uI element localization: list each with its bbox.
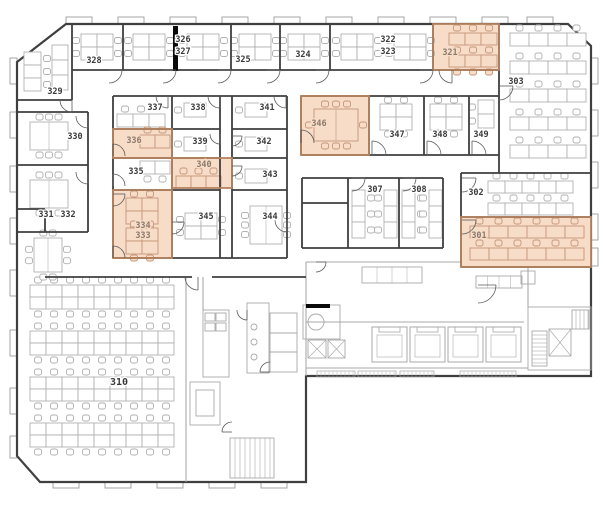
desk <box>505 181 522 193</box>
chair <box>36 152 43 158</box>
chair <box>236 141 243 147</box>
room-label-346: 346 <box>311 119 326 129</box>
desk <box>158 389 174 401</box>
desk <box>529 89 548 102</box>
desk <box>384 206 397 222</box>
room-label-331: 331 <box>38 210 53 220</box>
desk <box>158 297 174 309</box>
desk <box>565 226 584 238</box>
desk <box>62 389 78 401</box>
chair <box>535 81 542 87</box>
desk <box>78 435 94 447</box>
desk <box>126 285 142 297</box>
desk <box>510 145 529 158</box>
chair <box>147 403 154 409</box>
chair <box>99 369 106 375</box>
chair <box>236 173 243 179</box>
desk <box>62 343 78 355</box>
chair <box>51 449 58 455</box>
desk <box>546 248 565 260</box>
chair <box>35 403 42 409</box>
chair <box>73 51 80 57</box>
chair <box>573 137 580 143</box>
chair <box>115 449 122 455</box>
desk <box>394 47 410 60</box>
desk <box>203 47 219 60</box>
room-label-330: 330 <box>67 132 82 142</box>
desk <box>396 117 412 130</box>
room-label-348: 348 <box>432 130 447 140</box>
desk <box>126 389 142 401</box>
chair <box>242 232 249 238</box>
chair <box>67 403 74 409</box>
chair <box>573 109 580 115</box>
chair <box>147 357 154 363</box>
desk <box>548 89 567 102</box>
chair <box>67 369 74 375</box>
chair <box>333 101 340 107</box>
room-label-329: 329 <box>47 87 62 97</box>
desk <box>52 45 68 60</box>
chair <box>67 323 74 329</box>
desk <box>446 104 462 117</box>
room-label-326: 326 <box>175 35 190 45</box>
desk <box>155 161 170 174</box>
desk <box>357 34 373 47</box>
desk <box>548 117 567 130</box>
desk <box>46 435 62 447</box>
desk <box>62 331 78 343</box>
desk <box>52 60 68 75</box>
chair <box>420 227 427 233</box>
chair <box>131 449 138 455</box>
chair <box>131 357 138 363</box>
desk <box>126 241 142 254</box>
room-label-302: 302 <box>468 188 483 198</box>
desk <box>30 435 46 447</box>
desk <box>133 34 149 47</box>
desk <box>94 435 110 447</box>
desk <box>567 145 586 158</box>
chair <box>44 56 51 62</box>
desk <box>402 222 415 238</box>
chair <box>163 357 170 363</box>
chair <box>360 122 367 128</box>
desk <box>24 65 41 78</box>
desk <box>352 190 365 206</box>
chair <box>147 191 154 197</box>
chair <box>46 114 53 120</box>
room-label-325: 325 <box>235 55 250 65</box>
chair <box>35 415 42 421</box>
chair <box>64 258 71 264</box>
chair <box>333 38 340 44</box>
chair <box>435 97 442 103</box>
chair <box>67 357 74 363</box>
chair <box>26 246 33 252</box>
chair <box>221 51 228 57</box>
desk <box>126 331 142 343</box>
desk <box>94 343 110 355</box>
chair <box>454 25 461 31</box>
desk <box>203 34 219 47</box>
chair <box>125 38 132 44</box>
desk <box>78 285 94 297</box>
chair <box>163 403 170 409</box>
chair <box>516 137 523 143</box>
desk <box>430 117 446 130</box>
room-label-335: 335 <box>128 167 143 177</box>
chair <box>163 449 170 455</box>
chair <box>573 53 580 59</box>
chair <box>131 191 138 197</box>
chair <box>368 211 375 217</box>
desk <box>81 34 97 47</box>
desk <box>446 117 462 130</box>
chair <box>36 114 43 120</box>
chair <box>99 449 106 455</box>
desk <box>384 190 397 206</box>
chair <box>552 240 559 246</box>
chair <box>99 323 106 329</box>
chair <box>83 323 90 329</box>
desk <box>357 47 373 60</box>
chair <box>516 25 523 31</box>
desk <box>429 222 442 238</box>
chair <box>236 107 243 113</box>
desk <box>410 34 426 47</box>
desk <box>62 297 78 309</box>
desk <box>78 297 94 309</box>
desk <box>201 226 217 239</box>
chair <box>571 240 578 246</box>
chair <box>167 38 174 44</box>
chair <box>322 38 329 44</box>
chair <box>99 415 106 421</box>
chair <box>144 176 151 182</box>
chair <box>99 403 106 409</box>
room-label-301: 301 <box>471 231 486 241</box>
desk <box>110 331 126 343</box>
desk <box>30 423 46 435</box>
desk <box>429 206 442 222</box>
room-label-310: 310 <box>110 377 128 388</box>
desk <box>529 117 548 130</box>
chair <box>554 53 561 59</box>
chair <box>83 311 90 317</box>
chair <box>375 211 382 217</box>
chair <box>122 106 129 112</box>
chair <box>322 143 329 149</box>
desk <box>384 222 397 238</box>
desk <box>142 377 158 389</box>
desk <box>158 435 174 447</box>
chair <box>46 172 53 178</box>
desk <box>126 435 142 447</box>
room-label-327: 327 <box>175 47 190 57</box>
desk <box>110 389 126 401</box>
chair <box>35 369 42 375</box>
chair <box>51 357 58 363</box>
desk <box>46 389 62 401</box>
desk <box>133 47 149 60</box>
desk <box>508 226 527 238</box>
desk <box>133 114 149 127</box>
chair <box>322 101 329 107</box>
desk <box>142 331 158 343</box>
chair <box>35 311 42 317</box>
chair <box>131 415 138 421</box>
room-label-321: 321 <box>442 48 457 58</box>
desk <box>380 104 396 117</box>
chair <box>175 107 182 113</box>
desk <box>206 176 221 188</box>
desk <box>465 33 481 45</box>
desk <box>110 343 126 355</box>
chair <box>36 172 43 178</box>
chair <box>552 218 559 224</box>
room-label-334: 334 <box>135 221 150 231</box>
chair <box>375 195 382 201</box>
desk <box>489 248 508 260</box>
chair <box>83 357 90 363</box>
chair <box>35 449 42 455</box>
chair <box>67 415 74 421</box>
desk <box>556 181 573 193</box>
chair <box>131 369 138 375</box>
chair <box>131 403 138 409</box>
desk <box>24 78 41 91</box>
chair <box>333 143 340 149</box>
desk <box>110 297 126 309</box>
desk <box>396 104 412 117</box>
chair <box>147 323 154 329</box>
desk <box>176 176 191 188</box>
room-label-343: 343 <box>262 170 277 180</box>
chair <box>514 240 521 246</box>
desk <box>522 181 539 193</box>
desk <box>94 377 110 389</box>
chair <box>67 449 74 455</box>
desk <box>488 181 505 193</box>
chair <box>125 51 132 57</box>
chair <box>159 127 166 133</box>
desk <box>522 203 539 215</box>
desk <box>481 33 497 45</box>
desk <box>78 377 94 389</box>
room-label-307: 307 <box>367 185 382 195</box>
desk <box>567 117 586 130</box>
desk <box>529 33 548 46</box>
chair <box>131 323 138 329</box>
room-label-342: 342 <box>256 137 271 147</box>
desk <box>191 176 206 188</box>
desk <box>46 331 62 343</box>
desk <box>352 222 365 238</box>
chair <box>167 51 174 57</box>
chair <box>516 109 523 115</box>
chair <box>163 323 170 329</box>
chair <box>163 415 170 421</box>
chair <box>35 357 42 363</box>
desk <box>126 343 142 355</box>
chair <box>147 311 154 317</box>
desk <box>394 34 410 47</box>
desk <box>567 61 586 74</box>
room-label-345: 345 <box>198 212 213 222</box>
desk <box>380 117 396 130</box>
desk <box>539 181 556 193</box>
chair <box>486 47 493 53</box>
desk <box>30 377 46 389</box>
desk <box>527 248 546 260</box>
desk <box>149 47 165 60</box>
chair <box>147 369 154 375</box>
chair <box>368 195 375 201</box>
chair <box>476 218 483 224</box>
chair <box>273 51 280 57</box>
chair <box>470 25 477 31</box>
desk <box>62 377 78 389</box>
chair <box>55 152 62 158</box>
chair <box>535 109 542 115</box>
chair <box>470 47 477 53</box>
room-label-332: 332 <box>60 210 75 220</box>
desk <box>565 248 584 260</box>
desk <box>341 34 357 47</box>
chair <box>527 195 534 201</box>
desk <box>97 34 113 47</box>
desk <box>510 33 529 46</box>
chair <box>73 38 80 44</box>
chair <box>159 176 166 182</box>
chair <box>83 415 90 421</box>
desk <box>94 331 110 343</box>
chair <box>115 323 122 329</box>
desk <box>46 343 62 355</box>
desk <box>429 190 442 206</box>
desk <box>341 47 357 60</box>
desk <box>126 198 142 211</box>
chair <box>115 357 122 363</box>
chair <box>55 172 62 178</box>
chair <box>495 218 502 224</box>
chair <box>561 195 568 201</box>
chair <box>401 97 408 103</box>
room-label-303: 303 <box>508 77 523 87</box>
chair <box>273 38 280 44</box>
desk <box>430 104 446 117</box>
desk <box>30 297 46 309</box>
chair <box>554 137 561 143</box>
desk <box>30 343 46 355</box>
desk <box>478 114 494 128</box>
desk <box>548 33 567 46</box>
chair <box>64 246 71 252</box>
chair <box>554 25 561 31</box>
desk <box>46 285 62 297</box>
desk <box>78 389 94 401</box>
room-label-324: 324 <box>295 50 310 60</box>
chair <box>51 415 58 421</box>
chair <box>385 97 392 103</box>
desk <box>142 241 158 254</box>
desk <box>142 423 158 435</box>
desk <box>548 145 567 158</box>
desk <box>556 203 573 215</box>
chair <box>451 131 458 137</box>
chair <box>147 449 154 455</box>
chair <box>571 218 578 224</box>
floor-plan-canvas: 3283263273253243223233213033293303313323… <box>0 0 603 514</box>
desk <box>24 52 41 65</box>
chair <box>510 195 517 201</box>
room-label-337: 337 <box>147 103 162 113</box>
desk <box>158 331 174 343</box>
chair <box>51 323 58 329</box>
desk <box>30 389 46 401</box>
desk <box>94 423 110 435</box>
desk <box>142 435 158 447</box>
chair <box>163 369 170 375</box>
desk <box>142 285 158 297</box>
chair <box>544 195 551 201</box>
chair <box>83 403 90 409</box>
desk <box>402 206 415 222</box>
chair <box>221 38 228 44</box>
desk <box>567 89 586 102</box>
desk <box>481 55 497 67</box>
desk <box>30 331 46 343</box>
desk <box>410 47 426 60</box>
chair <box>533 218 540 224</box>
chair <box>242 213 249 219</box>
chair <box>115 311 122 317</box>
chair <box>554 81 561 87</box>
desk <box>62 423 78 435</box>
room-label-347: 347 <box>389 130 404 140</box>
chair <box>138 106 145 112</box>
chair <box>46 152 53 158</box>
chair <box>573 25 580 31</box>
chair <box>533 240 540 246</box>
desk <box>155 135 170 148</box>
chair <box>51 369 58 375</box>
chair <box>26 258 33 264</box>
desk <box>126 377 142 389</box>
desk <box>478 100 494 114</box>
chair <box>163 311 170 317</box>
floor-plan: 3283263273253243223233213033293303313323… <box>0 0 603 514</box>
desk <box>304 34 320 47</box>
chair <box>486 25 493 31</box>
chair <box>83 369 90 375</box>
desk <box>567 33 586 46</box>
chair <box>83 449 90 455</box>
chair <box>493 195 500 201</box>
desk <box>527 226 546 238</box>
room-label-339: 339 <box>192 137 207 147</box>
desk <box>470 248 489 260</box>
desk <box>30 285 46 297</box>
desk <box>158 377 174 389</box>
chair <box>51 403 58 409</box>
chair <box>44 69 51 75</box>
desk <box>546 226 565 238</box>
chair <box>49 230 56 236</box>
chair <box>175 141 182 147</box>
chair <box>573 81 580 87</box>
